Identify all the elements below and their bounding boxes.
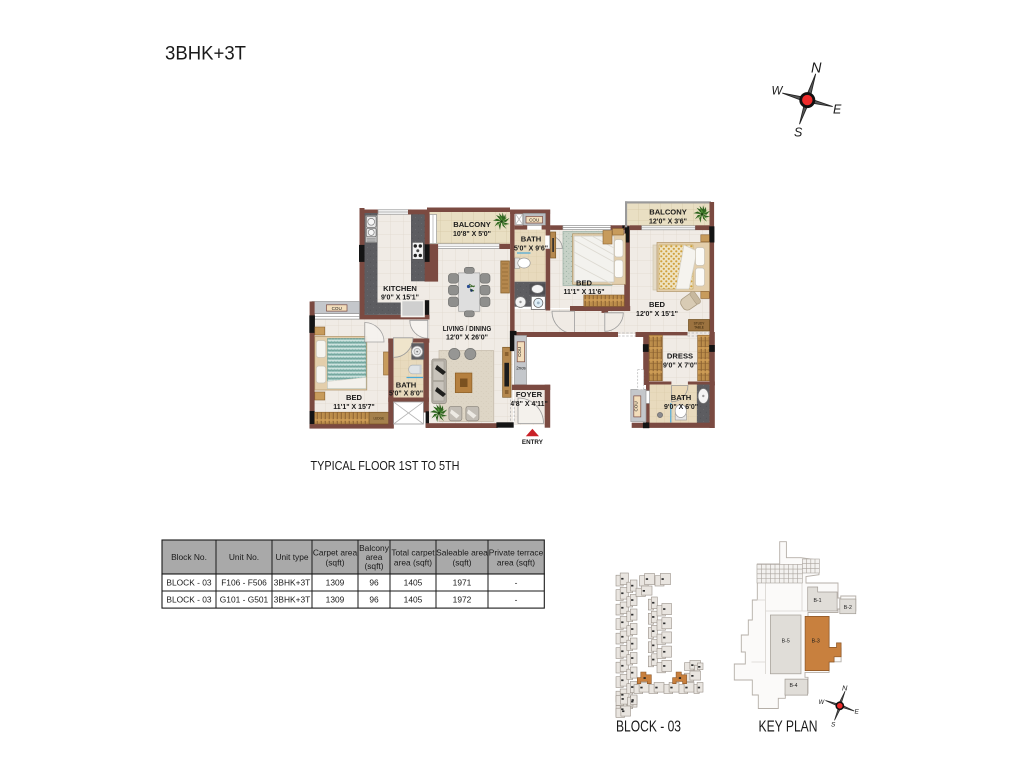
svg-text:(sqft): (sqft) xyxy=(325,558,344,568)
svg-text:BALCONY: BALCONY xyxy=(453,220,491,229)
svg-text:N: N xyxy=(842,684,848,693)
svg-text:B-5: B-5 xyxy=(782,638,790,644)
svg-text:-: - xyxy=(515,578,518,588)
svg-text:LIVING / DINING: LIVING / DINING xyxy=(443,324,492,333)
svg-text:S: S xyxy=(794,126,803,140)
svg-text:BLOCK - 03: BLOCK - 03 xyxy=(616,719,681,736)
svg-text:1309: 1309 xyxy=(326,595,345,605)
svg-text:1405: 1405 xyxy=(404,578,423,588)
svg-text:Private terrace: Private terrace xyxy=(489,548,544,558)
svg-text:area (sqft): area (sqft) xyxy=(497,558,535,568)
svg-text:B-3: B-3 xyxy=(812,638,820,644)
svg-text:Total carpet: Total carpet xyxy=(391,548,435,558)
svg-text:TABLE: TABLE xyxy=(694,326,704,330)
svg-text:9'0" X 15'1": 9'0" X 15'1" xyxy=(381,295,419,302)
svg-text:E: E xyxy=(855,709,860,716)
svg-text:4'8" X 4'11": 4'8" X 4'11" xyxy=(510,401,548,408)
svg-text:G101 - G501: G101 - G501 xyxy=(220,595,269,605)
svg-text:B-2: B-2 xyxy=(844,605,852,611)
svg-text:KEY PLAN: KEY PLAN xyxy=(759,719,818,736)
svg-text:1405: 1405 xyxy=(404,595,423,605)
svg-text:LEDGE: LEDGE xyxy=(373,417,384,421)
svg-text:B-4: B-4 xyxy=(789,683,797,689)
svg-text:BED: BED xyxy=(576,279,593,288)
svg-text:COU: COU xyxy=(529,218,539,223)
svg-text:N: N xyxy=(811,61,822,77)
svg-text:BATH: BATH xyxy=(521,235,542,244)
svg-text:96: 96 xyxy=(369,578,379,588)
svg-text:TYPICAL FLOOR 1ST TO 5TH: TYPICAL FLOOR 1ST TO 5TH xyxy=(311,458,460,473)
svg-text:12'0" X 26'0": 12'0" X 26'0" xyxy=(446,335,488,342)
svg-text:BALCONY: BALCONY xyxy=(649,208,687,217)
svg-text:KITCHEN: KITCHEN xyxy=(383,284,417,293)
svg-text:1971: 1971 xyxy=(453,578,472,588)
svg-text:W: W xyxy=(772,86,784,98)
svg-text:BLOCK - 03: BLOCK - 03 xyxy=(166,595,211,605)
svg-text:Unit No.: Unit No. xyxy=(229,552,259,562)
svg-text:BLOCK - 03: BLOCK - 03 xyxy=(166,578,211,588)
svg-text:B-1: B-1 xyxy=(813,598,821,604)
svg-text:3BHK+3T: 3BHK+3T xyxy=(165,43,246,65)
svg-text:9'0" X 6'0": 9'0" X 6'0" xyxy=(664,404,698,411)
svg-text:5'0" X 9'6": 5'0" X 9'6" xyxy=(514,246,548,253)
svg-text:10'8" X 5'0": 10'8" X 5'0" xyxy=(453,231,491,238)
svg-text:3BHK+3T: 3BHK+3T xyxy=(274,578,311,588)
svg-text:BED: BED xyxy=(346,393,363,402)
svg-text:Block No.: Block No. xyxy=(171,552,207,562)
svg-text:3BHK+3T: 3BHK+3T xyxy=(274,595,311,605)
svg-text:9'0" X 7'0": 9'0" X 7'0" xyxy=(663,363,697,370)
svg-text:11'1" X 11'6": 11'1" X 11'6" xyxy=(563,289,604,296)
svg-text:COU: COU xyxy=(633,401,638,411)
svg-text:1309: 1309 xyxy=(326,578,345,588)
svg-text:Saleable area: Saleable area xyxy=(436,548,488,558)
svg-text:DRESS: DRESS xyxy=(667,352,693,361)
svg-text:COU: COU xyxy=(332,306,342,311)
svg-text:Unit type: Unit type xyxy=(275,552,308,562)
svg-text:BATH: BATH xyxy=(671,393,692,402)
svg-text:ENTRY: ENTRY xyxy=(522,439,544,446)
svg-text:96: 96 xyxy=(369,595,379,605)
svg-text:-: - xyxy=(515,595,518,605)
svg-text:11'1" X 15'7": 11'1" X 15'7" xyxy=(333,404,375,411)
svg-text:COU: COU xyxy=(517,347,522,357)
svg-text:2nos: 2nos xyxy=(516,366,526,371)
svg-text:12'0" X 3'6": 12'0" X 3'6" xyxy=(649,219,687,226)
svg-text:12'0" X 15'1": 12'0" X 15'1" xyxy=(636,311,678,318)
svg-text:Carpet area: Carpet area xyxy=(313,548,358,558)
svg-text:E: E xyxy=(833,103,842,117)
svg-text:1972: 1972 xyxy=(453,595,472,605)
svg-text:area (sqft): area (sqft) xyxy=(394,558,432,568)
svg-text:BED: BED xyxy=(649,300,666,309)
svg-text:5'0" X 8'0": 5'0" X 8'0" xyxy=(389,391,423,398)
svg-text:(sqft): (sqft) xyxy=(452,558,471,568)
svg-text:S: S xyxy=(831,722,836,729)
svg-text:FOYER: FOYER xyxy=(516,390,543,399)
svg-text:(sqft): (sqft) xyxy=(364,561,383,571)
svg-text:BATH: BATH xyxy=(396,381,417,390)
svg-text:F106 - F506: F106 - F506 xyxy=(221,578,267,588)
